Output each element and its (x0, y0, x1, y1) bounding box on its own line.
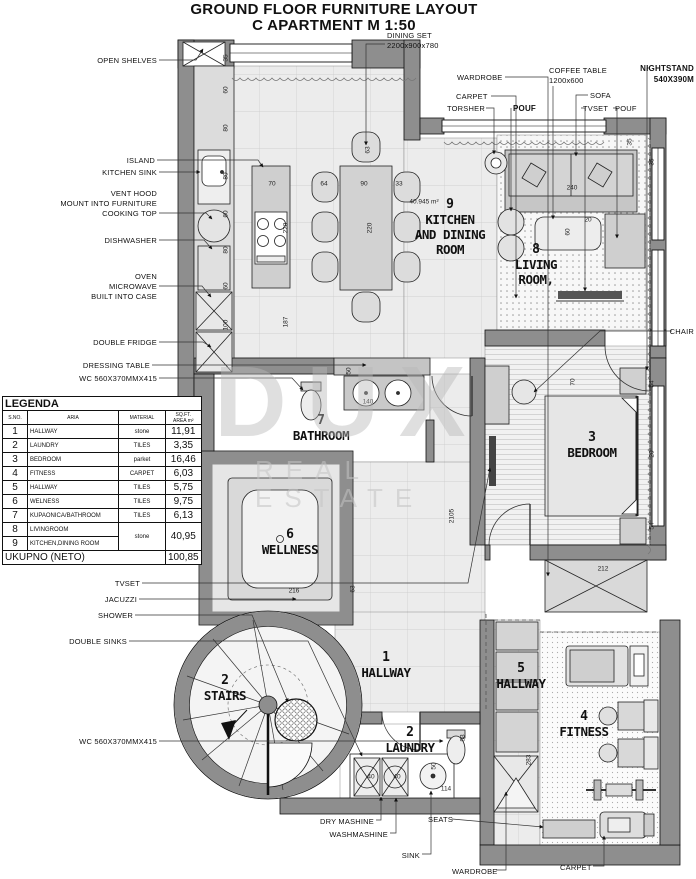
legend-cell: SQ.FT. AREA m² (166, 411, 202, 425)
legend-cell: 16,46 (166, 453, 202, 467)
legend-cell: HALLWAY (28, 481, 119, 495)
legend-cell: TILES (119, 509, 166, 523)
legend-table: LEGENDAS.NO.ARIAMATERIALSQ.FT. AREA m²1H… (2, 396, 202, 565)
legend-cell: FITNESS (28, 467, 119, 481)
legend-cell: 100,85 (166, 551, 202, 565)
legend-cell: 40,95 (166, 523, 202, 551)
legend-cell: LAUNDRY (28, 439, 119, 453)
legend-cell: parket (119, 453, 166, 467)
legend-cell: 2 (3, 439, 28, 453)
legend-cell: 3,35 (166, 439, 202, 453)
legend-cell: 7 (3, 509, 28, 523)
legend-cell: HALLWAY (28, 425, 119, 439)
spiral-stairs (174, 611, 362, 799)
legend-cell: 11,91 (166, 425, 202, 439)
legend-cell: 6,03 (166, 467, 202, 481)
legend-cell: 8 (3, 523, 28, 537)
legend-cell: 6 (3, 495, 28, 509)
legend-cell: 6,13 (166, 509, 202, 523)
floor-plan: GROUND FLOOR FURNITURE LAYOUT C APARTMEN… (0, 0, 696, 879)
legend-cell: KUPAONICA/BATHROOM (28, 509, 119, 523)
legend-cell: S.NO. (3, 411, 28, 425)
legend-cell: TILES (119, 481, 166, 495)
legend-cell: UKUPNO (NETO) (3, 551, 166, 565)
legend-cell: KITCHEN,DINING ROOM (28, 537, 119, 551)
legend-cell: 5 (3, 481, 28, 495)
legend-cell: stone (119, 523, 166, 551)
legend-cell: 1 (3, 425, 28, 439)
legend-cell: CARPET (119, 467, 166, 481)
legend-cell: MATERIAL (119, 411, 166, 425)
legend-cell: 3 (3, 453, 28, 467)
legend-cell: LIVINGROOM (28, 523, 119, 537)
legend-cell: LEGENDA (3, 397, 202, 411)
legend-cell: 9,75 (166, 495, 202, 509)
legend-cell: TILES (119, 495, 166, 509)
legend-cell: ARIA (28, 411, 119, 425)
legend-cell: TILES (119, 439, 166, 453)
legend-cell: 4 (3, 467, 28, 481)
legend-cell: 5,75 (166, 481, 202, 495)
legend-cell: stone (119, 425, 166, 439)
legend-cell: WELNESS (28, 495, 119, 509)
legend-cell: 9 (3, 537, 28, 551)
legend-cell: BEDROOM (28, 453, 119, 467)
